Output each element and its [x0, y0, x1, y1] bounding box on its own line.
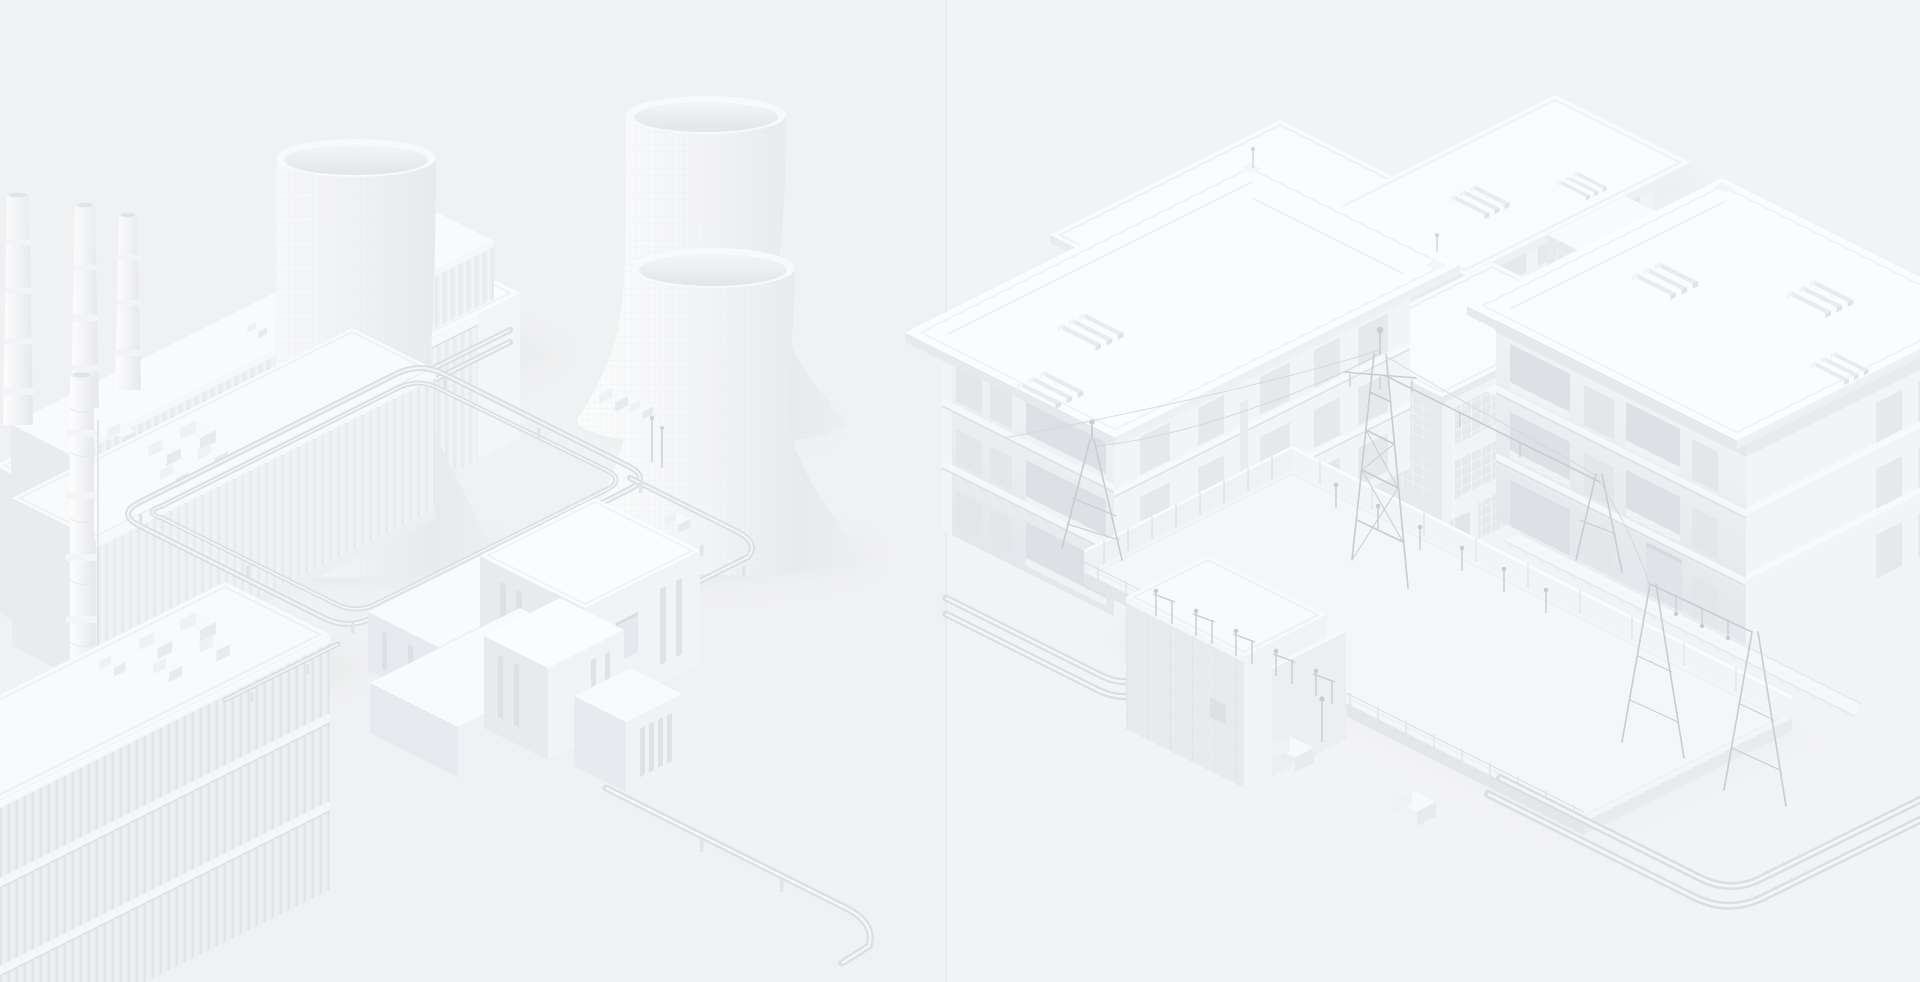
- render-stage: [0, 0, 1920, 982]
- isometric-scene: [0, 0, 1920, 982]
